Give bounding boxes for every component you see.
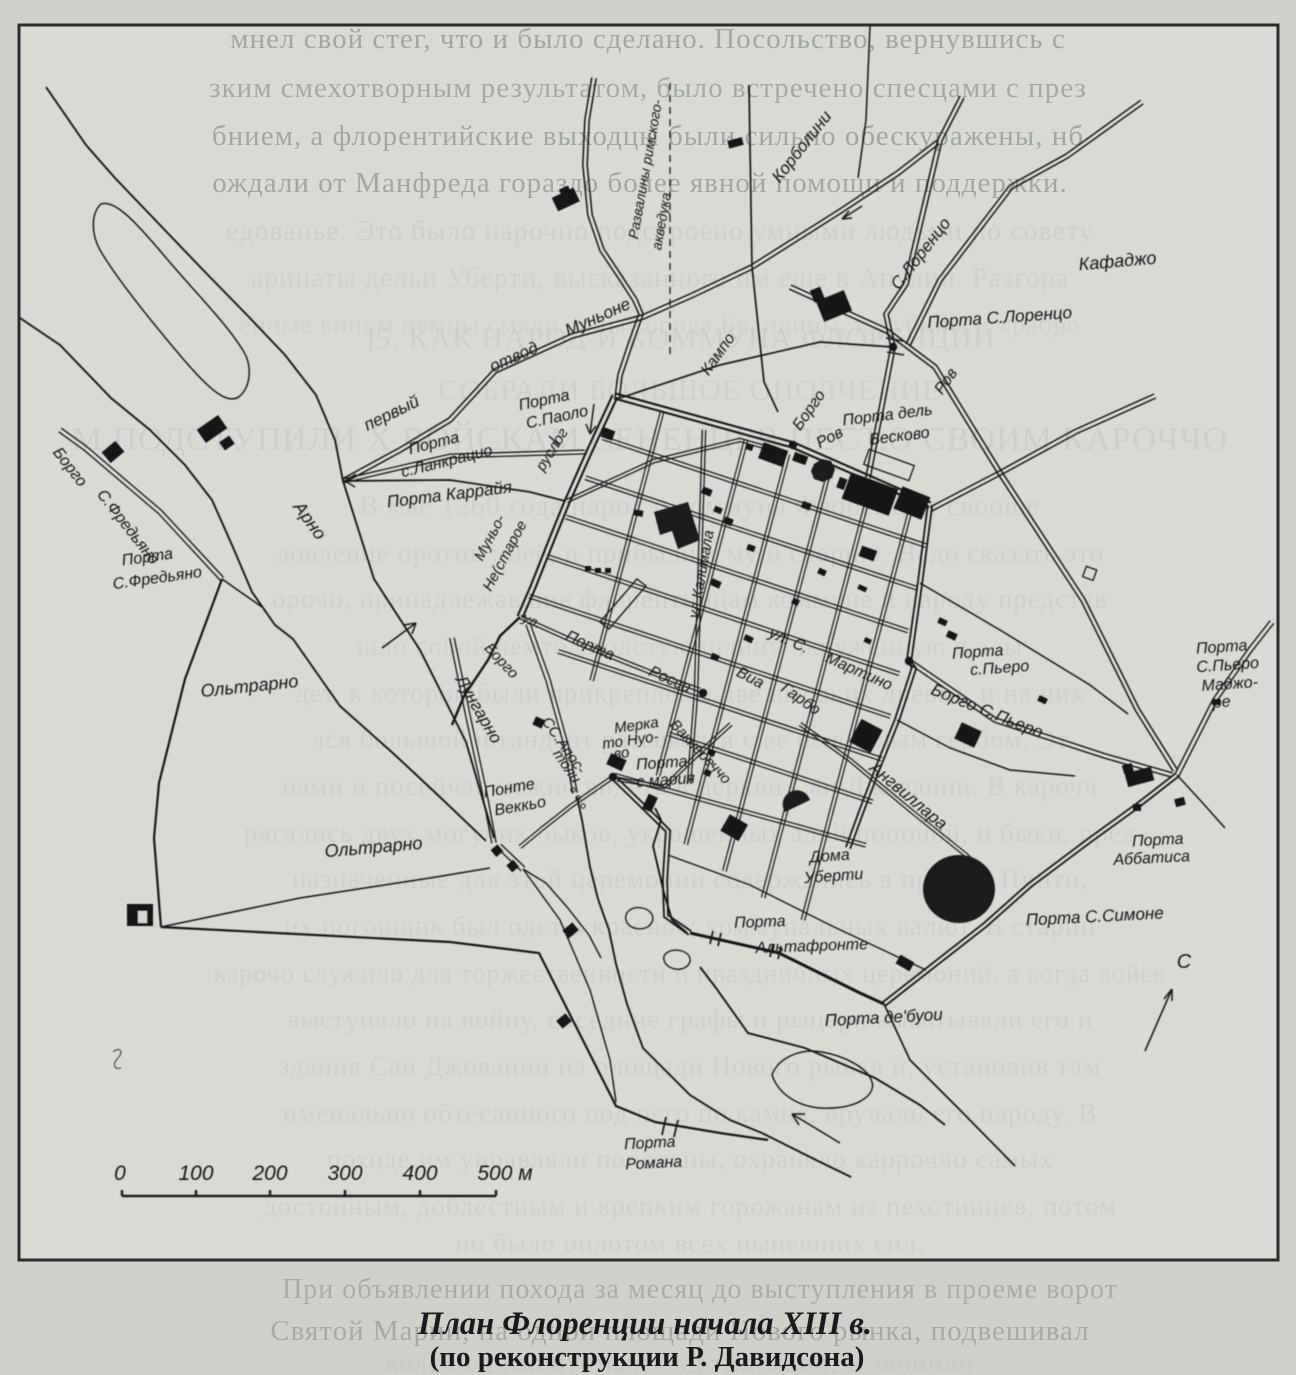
svg-text:Романа: Романа <box>625 1154 683 1174</box>
svg-text:Порта: Порта <box>1132 831 1184 851</box>
svg-text:200: 200 <box>251 1162 287 1185</box>
svg-text:Порта: Порта <box>734 913 786 932</box>
svg-text:100: 100 <box>178 1162 213 1185</box>
svg-text:Порта: Порта <box>624 1134 676 1154</box>
svg-text:С: С <box>1177 951 1192 973</box>
svg-text:300: 300 <box>327 1162 362 1185</box>
svg-text:здания Сан Джованни на площади: здания Сан Джованни на площади Нового ры… <box>279 1051 1102 1081</box>
svg-text:500 м: 500 м <box>477 1162 532 1185</box>
svg-text:0: 0 <box>114 1162 126 1185</box>
svg-text:ре: ре <box>1211 693 1231 711</box>
svg-text:(по реконструкции Р. Давидсона: (по реконструкции Р. Давидсона) <box>430 1341 865 1373</box>
svg-text:При объявлении похода за месяц: При объявлении похода за месяц до выступ… <box>282 1274 1118 1305</box>
svg-text:Дома: Дома <box>807 847 850 867</box>
svg-text:СОБРАЛИ БОЛЬШОЕ ОПОЛЧЕНИЕ: СОБРАЛИ БОЛЬШОЕ ОПОЛЧЕНИЕ <box>438 374 942 407</box>
svg-text:Порта: Порта <box>1195 637 1248 658</box>
svg-text:План Флоренции начала XIII в.: План Флоренции начала XIII в. <box>417 1306 872 1342</box>
svg-text:именально обтесанного под него: именально обтесанного под него по камня,… <box>283 1098 1098 1128</box>
svg-text:во: во <box>612 744 630 763</box>
svg-text:400: 400 <box>402 1162 437 1185</box>
svg-text:выступало на войну, соседние г: выступало на войну, соседние графы и рыц… <box>287 1004 1093 1034</box>
svg-text:зким смехотворным результатом,: зким смехотворным результатом, было встр… <box>209 72 1087 104</box>
svg-text:но было оплотом всех нынешних: но было оплотом всех нынешних сил. <box>455 1228 925 1258</box>
svg-text:мнел свой стег, что и было сде: мнел свой стег, что и было сделано. Посо… <box>230 23 1065 55</box>
